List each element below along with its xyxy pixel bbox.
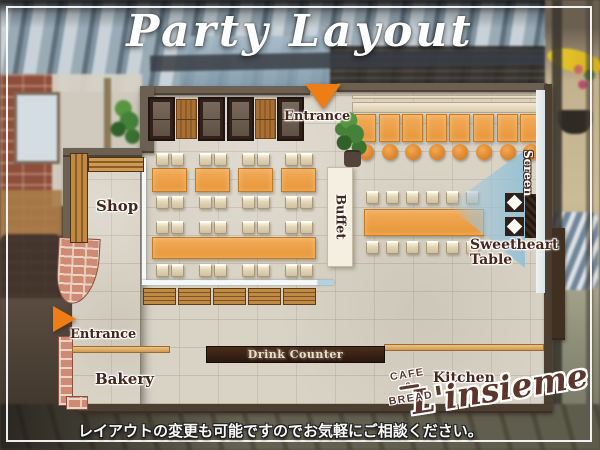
counter-stool [405,144,421,160]
banquet-chair [446,241,459,254]
center-chair [285,196,298,209]
entrance-left-label: Entrance [70,327,136,342]
counter-stool [476,144,492,160]
potted-plant-pot [344,150,361,167]
sweetheart-seat [505,217,524,236]
center-chair [199,153,212,166]
screen-label: Screen [521,150,535,196]
center-chair [257,221,270,234]
center-chair [242,196,255,209]
sweetheart-label: Sweetheart Table [470,238,558,268]
wall-bench [283,288,316,305]
entrance-arrow-left [53,306,76,332]
booth-table [176,99,197,139]
center-chair [257,153,270,166]
sweetheart-table [525,194,536,238]
center-chair [285,153,298,166]
entrance-top-label: Entrance [284,109,350,124]
counter-stool [429,144,445,160]
party-layout-poster: Buffet Screen Sweetheart Table Drink Cou… [0,0,600,450]
footer-note: レイアウトの変更も可能ですのでお気軽にご相談ください。 [78,420,483,441]
shop-label: Shop [96,197,138,215]
banquet-chair [426,191,439,204]
counter-table [473,114,494,142]
center-table [195,168,230,192]
drink-counter: Drink Counter [206,346,385,363]
wall-bench [248,288,281,305]
drink-counter-label: Drink Counter [248,348,343,361]
center-chair [199,196,212,209]
center-chair [214,153,227,166]
center-chair [257,264,270,277]
booth-sofa [148,97,175,141]
center-chair [171,153,184,166]
wall-bench [213,288,246,305]
wall-bench [143,288,176,305]
center-chair [171,221,184,234]
banquet-chair [406,241,419,254]
center-table [238,168,273,192]
entrance-arrow-top [305,84,341,109]
center-chair [214,264,227,277]
center-chair [242,153,255,166]
booth-table [255,99,276,139]
counter-table [379,114,400,142]
center-chair [300,153,313,166]
center-chair [242,264,255,277]
center-table [281,168,316,192]
counter-table [402,114,423,142]
center-chair [214,196,227,209]
banquet-chair [386,241,399,254]
center-chair [257,196,270,209]
center-chair [171,196,184,209]
center-chair [156,221,169,234]
center-chair [171,264,184,277]
counter-stool [500,144,516,160]
center-chair [285,221,298,234]
banquet-chair [426,241,439,254]
center-chair [156,153,169,166]
center-chair [300,264,313,277]
booth-sofa [198,97,225,141]
center-chair [242,221,255,234]
center-chair [300,196,313,209]
poster-title: Party Layout [0,6,600,57]
counter-table [426,114,447,142]
banquet-chair [406,191,419,204]
banquet-chair [366,241,379,254]
center-chair [214,221,227,234]
bakery-label: Bakery [95,370,154,388]
counter-table [497,114,518,142]
banquet-chair [386,191,399,204]
counter-stool [382,144,398,160]
center-chair [199,221,212,234]
booth-sofa [227,97,254,141]
counter-table [449,114,470,142]
center-chair [156,264,169,277]
counter-stool [452,144,468,160]
center-table [152,168,187,192]
wall-bench [178,288,211,305]
center-chair [156,196,169,209]
center-chair [285,264,298,277]
banquet-chair [366,191,379,204]
center-chair [199,264,212,277]
center-chair [300,221,313,234]
